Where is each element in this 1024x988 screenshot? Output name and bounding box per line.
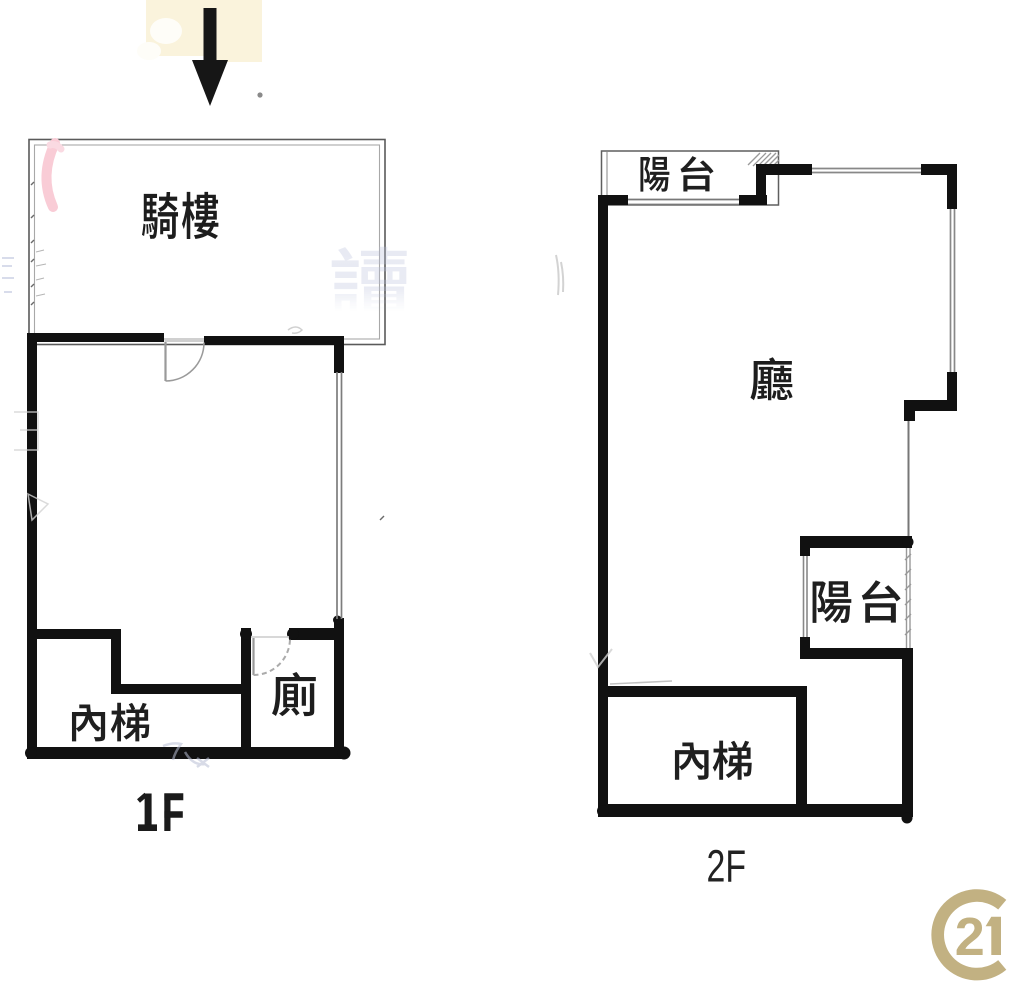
svg-text:2: 2 (955, 907, 985, 967)
svg-text:2F: 2F (707, 841, 747, 892)
